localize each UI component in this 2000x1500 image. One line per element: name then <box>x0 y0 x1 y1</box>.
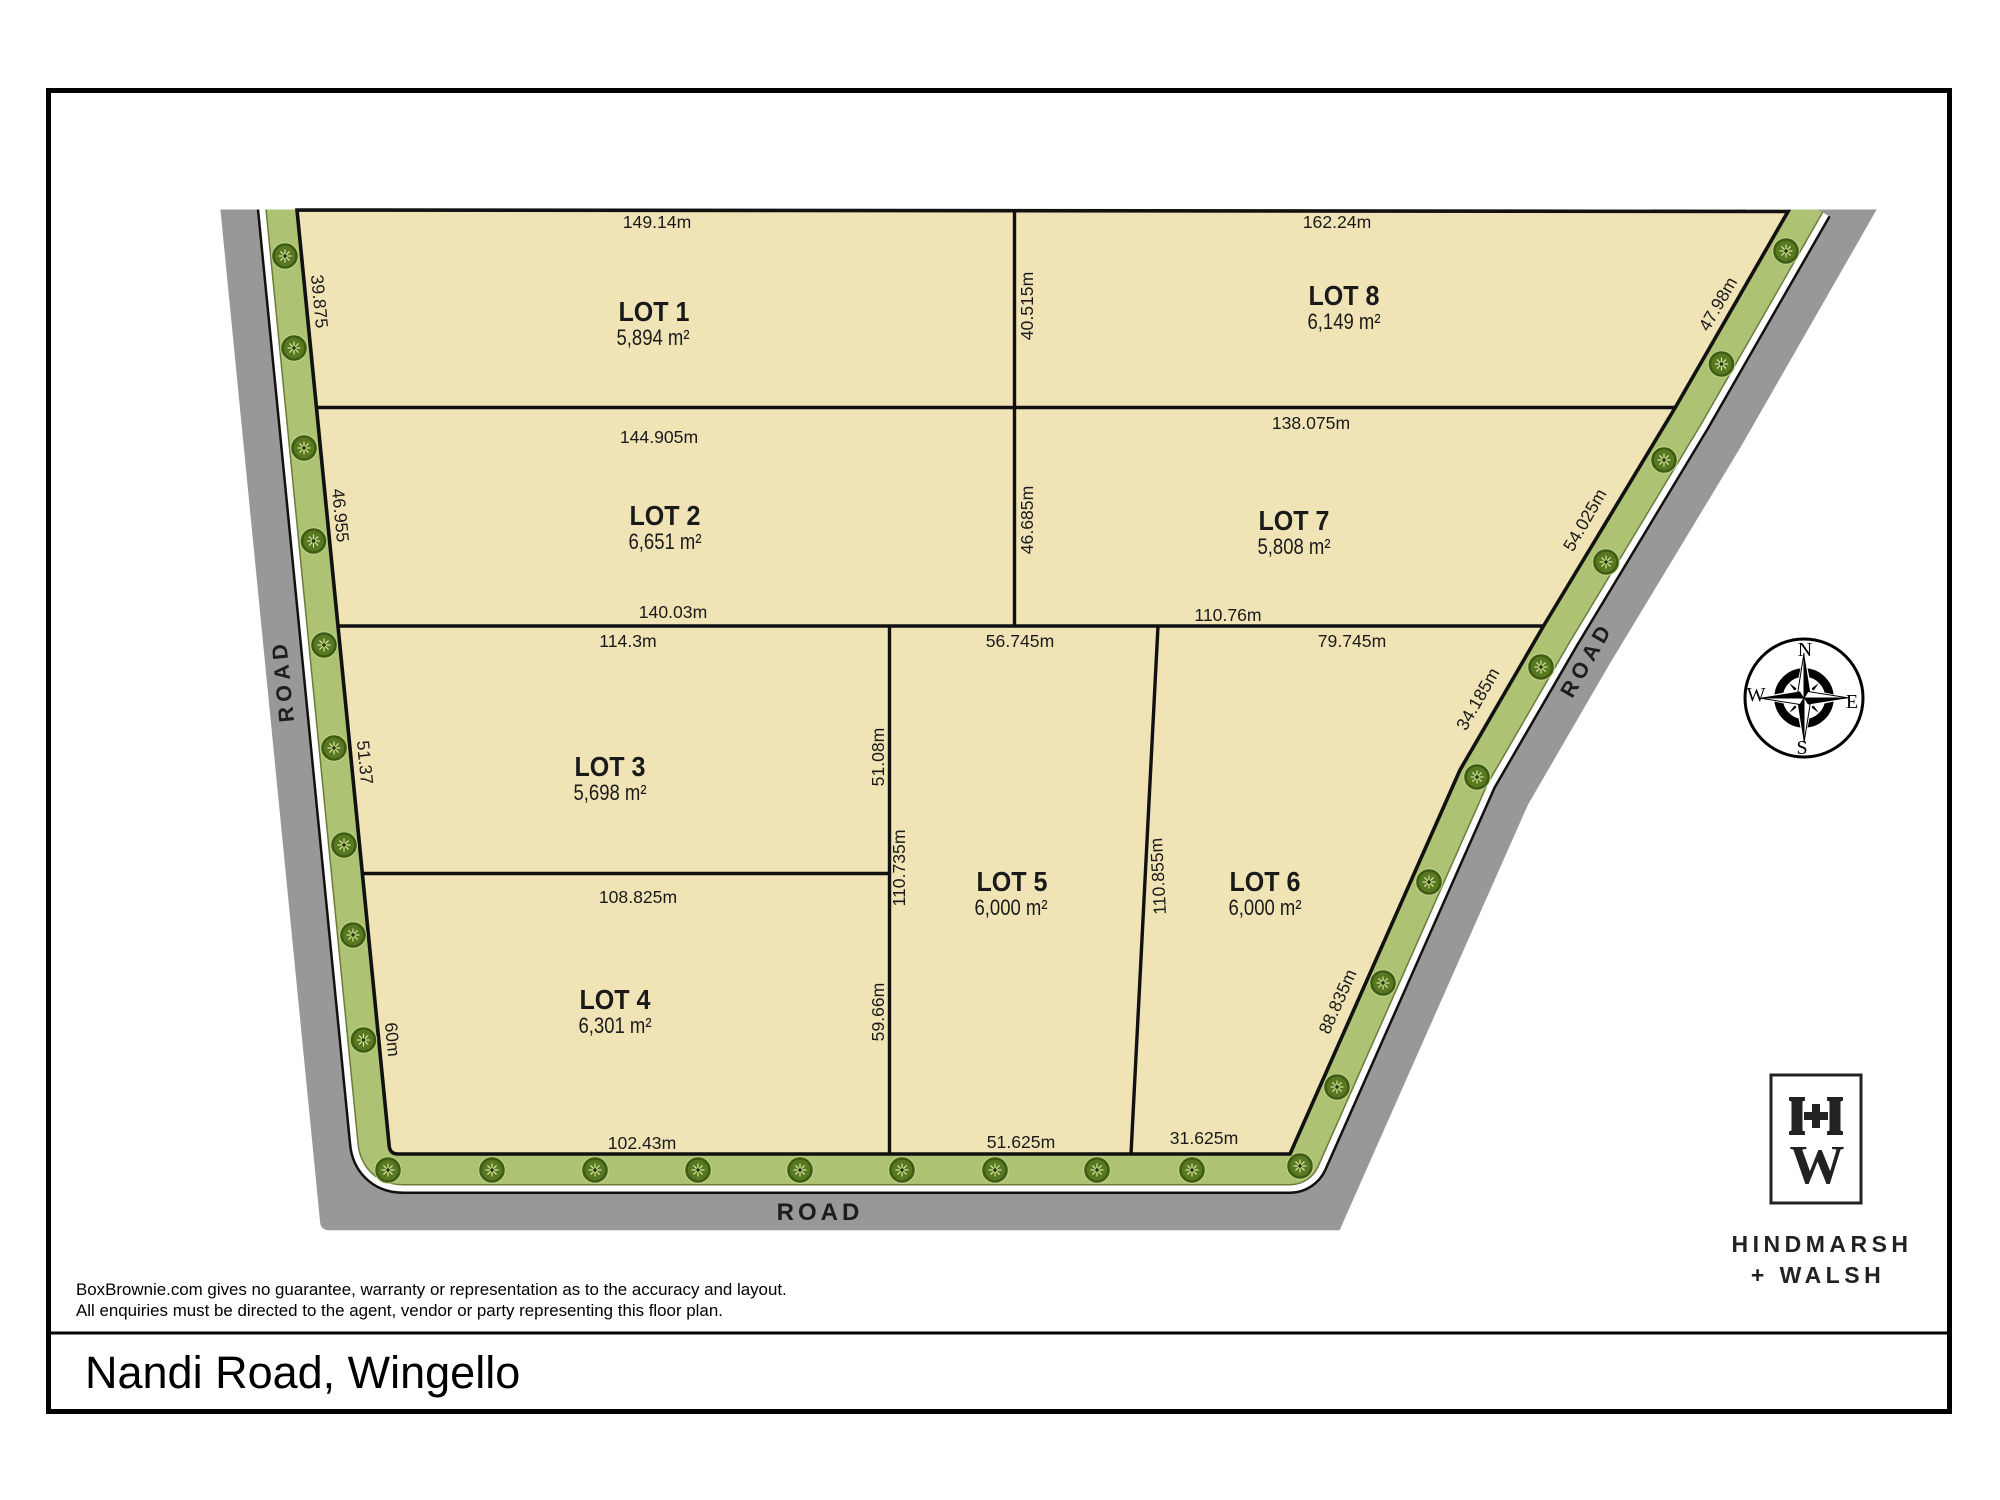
svg-text:LOT 1: LOT 1 <box>619 296 690 327</box>
svg-text:E: E <box>1846 691 1858 713</box>
svg-text:6,149 m²: 6,149 m² <box>1308 309 1381 334</box>
svg-text:W: W <box>1747 684 1766 706</box>
svg-text:6,301 m²: 6,301 m² <box>579 1013 652 1038</box>
svg-text:51.625m: 51.625m <box>987 1132 1055 1152</box>
svg-text:ROAD: ROAD <box>777 1199 864 1226</box>
svg-text:+ WALSH: + WALSH <box>1751 1262 1885 1288</box>
svg-text:LOT 7: LOT 7 <box>1259 505 1330 536</box>
svg-text:31.625m: 31.625m <box>1170 1128 1238 1148</box>
svg-text:60m: 60m <box>381 1021 404 1057</box>
svg-text:LOT 8: LOT 8 <box>1309 280 1380 311</box>
svg-text:40.515m: 40.515m <box>1017 272 1037 340</box>
svg-text:LOT 4: LOT 4 <box>580 984 651 1015</box>
svg-text:5,698 m²: 5,698 m² <box>574 780 647 805</box>
svg-text:149.14m: 149.14m <box>623 212 691 232</box>
svg-text:W: W <box>1790 1134 1845 1195</box>
svg-text:BoxBrownie.com gives no guaran: BoxBrownie.com gives no guarantee, warra… <box>76 1280 787 1299</box>
svg-text:LOT 6: LOT 6 <box>1230 866 1301 897</box>
svg-text:51.37: 51.37 <box>353 740 377 786</box>
svg-text:S: S <box>1796 737 1807 759</box>
svg-text:110.76m: 110.76m <box>1194 605 1261 625</box>
svg-text:All enquiries must be directed: All enquiries must be directed to the ag… <box>76 1301 723 1320</box>
svg-text:5,808 m²: 5,808 m² <box>1258 534 1331 559</box>
svg-text:Nandi Road, Wingello: Nandi Road, Wingello <box>85 1347 520 1398</box>
svg-text:6,000 m²: 6,000 m² <box>1229 895 1302 920</box>
svg-text:144.905m: 144.905m <box>620 427 698 447</box>
svg-text:LOT 2: LOT 2 <box>630 500 701 531</box>
svg-text:56.745m: 56.745m <box>986 631 1054 651</box>
svg-text:5,894 m²: 5,894 m² <box>617 325 690 350</box>
svg-text:79.745m: 79.745m <box>1318 631 1386 651</box>
svg-text:108.825m: 108.825m <box>599 887 677 907</box>
svg-text:114.3m: 114.3m <box>599 631 656 651</box>
svg-text:140.03m: 140.03m <box>639 602 707 622</box>
svg-text:138.075m: 138.075m <box>1272 413 1350 433</box>
svg-text:162.24m: 162.24m <box>1303 212 1371 232</box>
svg-text:110.855m: 110.855m <box>1146 837 1170 915</box>
svg-text:59.66m: 59.66m <box>868 983 888 1042</box>
svg-text:6,000 m²: 6,000 m² <box>975 895 1048 920</box>
svg-text:51.08m: 51.08m <box>868 728 888 787</box>
svg-text:102.43m: 102.43m <box>608 1133 676 1153</box>
svg-text:110.735m: 110.735m <box>889 830 909 907</box>
svg-text:HINDMARSH: HINDMARSH <box>1731 1231 1912 1257</box>
svg-text:46.685m: 46.685m <box>1017 486 1037 554</box>
svg-text:LOT 3: LOT 3 <box>575 751 646 782</box>
svg-text:LOT 5: LOT 5 <box>977 866 1048 897</box>
svg-text:6,651 m²: 6,651 m² <box>629 529 702 554</box>
